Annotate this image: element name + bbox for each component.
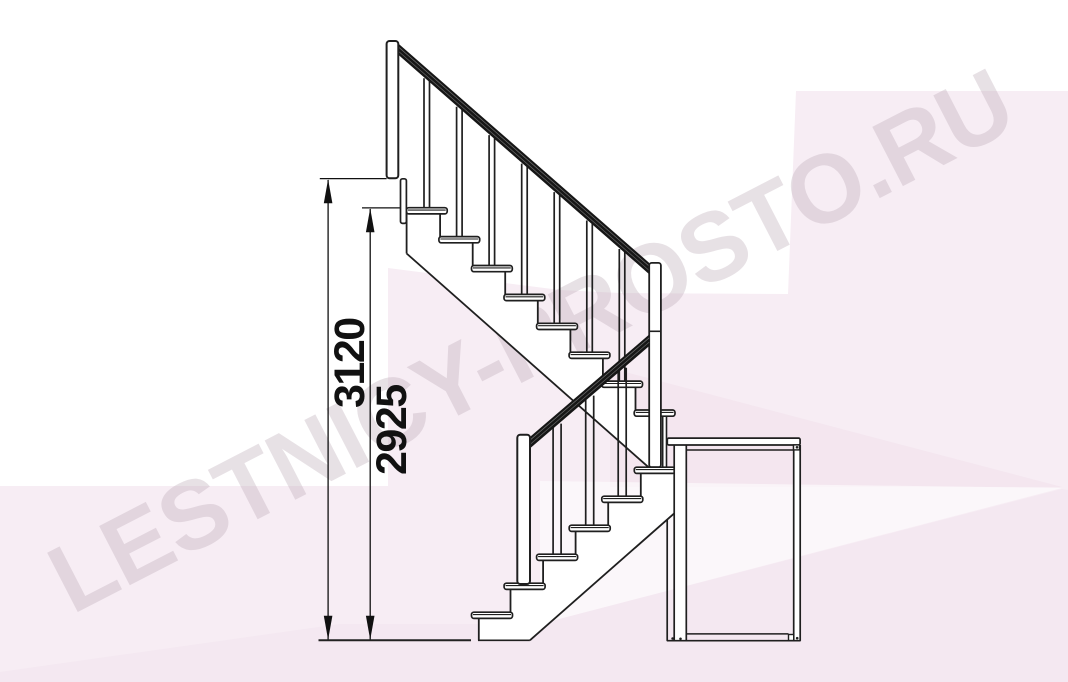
svg-text:2925: 2925 (368, 385, 416, 475)
svg-text:3120: 3120 (326, 318, 374, 408)
